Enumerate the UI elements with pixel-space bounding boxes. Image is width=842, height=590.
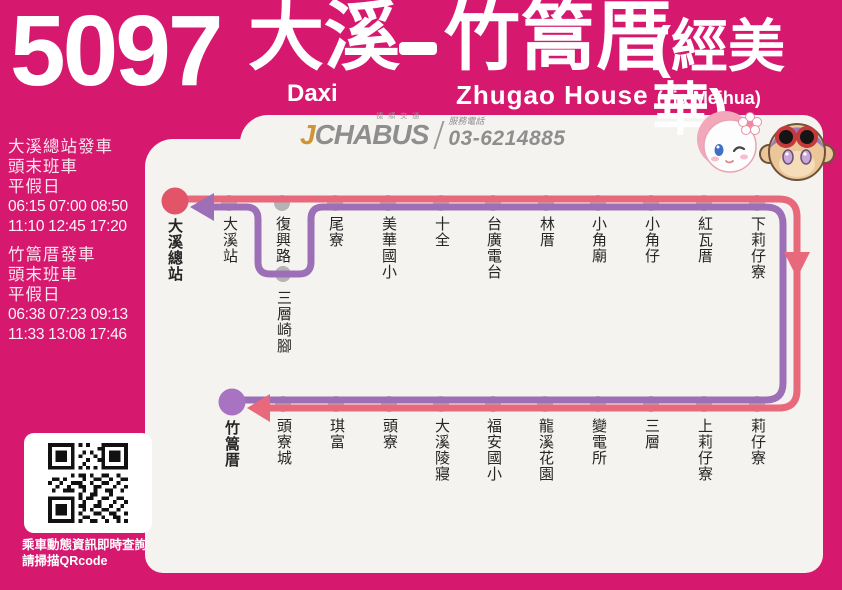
timetable-section2-times1: 06:38 07:23 09:13 bbox=[8, 305, 150, 325]
station-label-top-4: 美華國小 bbox=[379, 216, 397, 280]
mascot-monkey-character-icon bbox=[757, 110, 837, 190]
station-label-top-6: 台廣電台 bbox=[484, 216, 502, 280]
branch-station-label: 三層崎腳 bbox=[274, 290, 292, 354]
qr-caption: 乘車動態資訊即時查詢 請掃描QRcode bbox=[22, 537, 158, 569]
route-map-panel bbox=[145, 139, 823, 573]
timetable-section1-times1: 06:15 07:00 08:50 bbox=[8, 197, 150, 217]
destination-title-zh: 竹篙厝 bbox=[444, 0, 672, 80]
service-phone-number: 03-6214885 bbox=[448, 128, 565, 149]
qr-code-icon bbox=[48, 443, 128, 523]
logo-bus-block: 捷順交通 BUS bbox=[372, 113, 428, 149]
station-label-top-11: 下莉仔寮 bbox=[748, 216, 766, 280]
timetable-section2-times2: 11:33 13:08 17:46 bbox=[8, 325, 150, 345]
timetable-sidebar: 大溪總站發車 頭末班車 平假日 06:15 07:00 08:50 11:10 … bbox=[8, 137, 150, 345]
station-label-bottom-9: 上莉仔寮 bbox=[695, 418, 713, 482]
timetable-section1-title: 大溪總站發車 bbox=[8, 137, 150, 157]
qr-code-card bbox=[24, 433, 152, 533]
logo-text: JCHA bbox=[300, 121, 372, 149]
logo-slash-divider bbox=[434, 121, 445, 149]
origin-title-en: Daxi bbox=[287, 80, 338, 108]
station-label-top-10: 紅瓦厝 bbox=[695, 216, 713, 264]
timetable-section2-title: 竹篙厝發車 bbox=[8, 245, 150, 265]
timetable-section2-sub1: 頭末班車 bbox=[8, 265, 150, 285]
mascot-pink-character-icon bbox=[692, 106, 764, 178]
service-phone-label: 服務電話 bbox=[448, 117, 565, 126]
timetable-section1-times2: 11:10 12:45 17:20 bbox=[8, 217, 150, 237]
logo-letter-j: J bbox=[300, 119, 315, 150]
timetable-section1-sub2: 平假日 bbox=[8, 177, 150, 197]
station-label-bottom-5: 福安國小 bbox=[484, 418, 502, 482]
qr-caption-line1: 乘車動態資訊即時查詢 bbox=[22, 537, 158, 553]
station-label-top-9: 小角仔 bbox=[642, 216, 660, 264]
logo-letters-cha: CHA bbox=[315, 119, 373, 150]
bus-route-poster: 5097 大溪 竹篙厝 (經美華) Daxi Zhugao House (via… bbox=[0, 0, 842, 590]
qr-caption-line2: 請掃描QRcode bbox=[22, 553, 158, 569]
station-label-bottom-7: 變電所 bbox=[589, 418, 607, 466]
title-dash bbox=[399, 42, 437, 55]
operator-logo: JCHA 捷順交通 BUS 服務電話 03-6214885 bbox=[300, 117, 565, 149]
timetable-section2-sub2: 平假日 bbox=[8, 285, 150, 305]
station-label-top-2: 復興路 bbox=[273, 216, 291, 264]
origin-title-zh: 大溪 bbox=[248, 0, 400, 80]
route-number: 5097 bbox=[10, 0, 220, 109]
destination-en-text: Zhugao House bbox=[456, 80, 649, 110]
timetable-section1-sub1: 頭末班車 bbox=[8, 157, 150, 177]
via-title-en: (via Meihua) bbox=[657, 88, 761, 108]
station-label-top-1: 大溪站 bbox=[220, 216, 238, 264]
station-label-top-3: 尾寮 bbox=[326, 216, 344, 248]
station-label-bottom-1: 頭寮城 bbox=[274, 418, 292, 466]
destination-terminal-label: 竹篙厝 bbox=[222, 420, 240, 468]
station-label-bottom-8: 三層 bbox=[642, 418, 660, 450]
logo-letters-bus: BUS bbox=[372, 121, 428, 149]
station-label-top-5: 十全 bbox=[432, 216, 450, 248]
station-label-bottom-10: 莉仔寮 bbox=[748, 418, 766, 466]
service-phone-block: 服務電話 03-6214885 bbox=[448, 117, 565, 149]
station-label-bottom-2: 琪富 bbox=[327, 418, 345, 450]
station-label-top-7: 林厝 bbox=[537, 216, 555, 248]
station-label-bottom-3: 頭寮 bbox=[380, 418, 398, 450]
station-label-top-8: 小角廟 bbox=[589, 216, 607, 264]
station-label-bottom-6: 龍溪花園 bbox=[536, 418, 554, 482]
origin-terminal-label: 大溪總站 bbox=[165, 218, 183, 282]
station-label-bottom-4: 大溪陵寢 bbox=[432, 418, 450, 482]
